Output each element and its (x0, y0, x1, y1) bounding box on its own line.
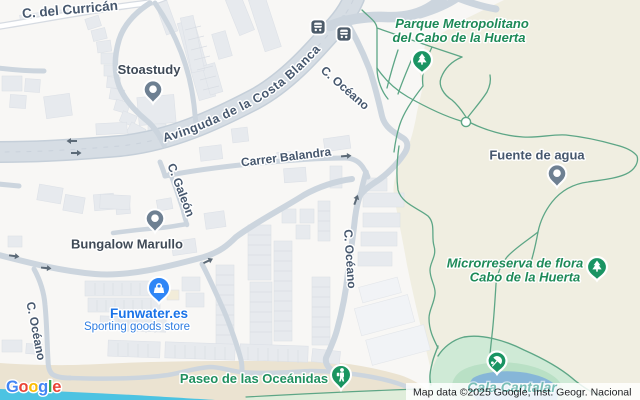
svg-text:Parque Metropolitano: Parque Metropolitano (395, 16, 529, 31)
svg-text:Funwater.es: Funwater.es (110, 306, 188, 321)
svg-text:Map data ©2025 Google, Inst. G: Map data ©2025 Google, Inst. Geogr. Naci… (413, 387, 631, 399)
svg-text:del Cabo de la Huerta: del Cabo de la Huerta (393, 30, 526, 45)
svg-text:Google: Google (6, 378, 61, 396)
svg-text:Bungalow Marullo: Bungalow Marullo (71, 237, 183, 252)
svg-text:Paseo de las Oceánidas: Paseo de las Oceánidas (180, 371, 328, 386)
svg-text:Stoastudy: Stoastudy (118, 62, 182, 77)
svg-text:Fuente de agua: Fuente de agua (489, 148, 585, 163)
svg-text:Microrreserva de flora: Microrreserva de flora (447, 256, 584, 271)
svg-text:Sporting goods store: Sporting goods store (84, 321, 190, 333)
svg-text:Cabo de la Huerta: Cabo de la Huerta (470, 270, 581, 285)
